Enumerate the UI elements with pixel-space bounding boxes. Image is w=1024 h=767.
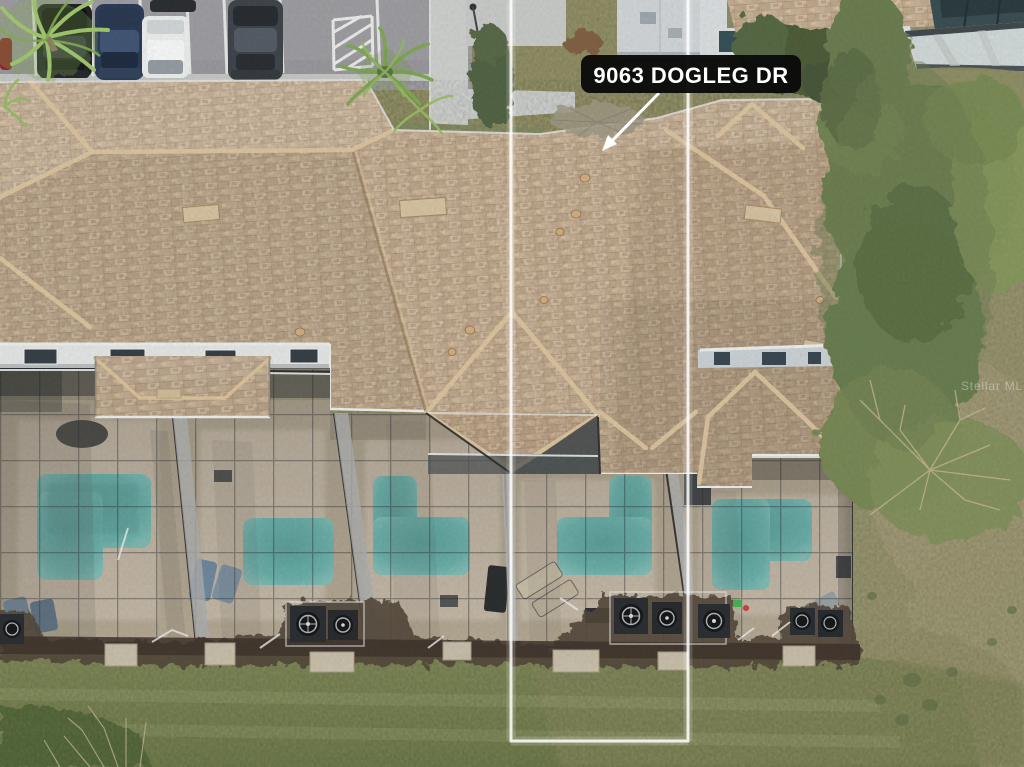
svg-text:Stellar MLS: Stellar MLS: [961, 379, 1024, 393]
svg-text:9063 DOGLEG DR: 9063 DOGLEG DR: [593, 63, 788, 88]
